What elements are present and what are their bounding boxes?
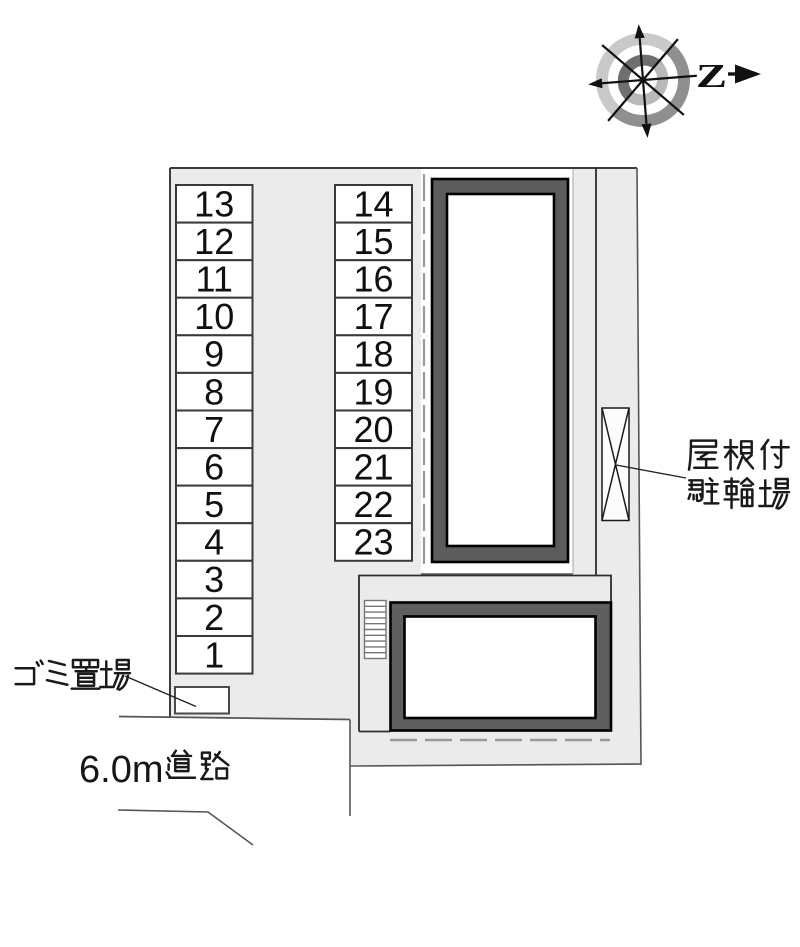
svg-text:10: 10 [194, 296, 234, 337]
svg-text:2: 2 [204, 597, 224, 638]
svg-text:4: 4 [204, 522, 224, 563]
svg-text:22: 22 [353, 484, 393, 525]
svg-text:17: 17 [353, 296, 393, 337]
svg-text:16: 16 [353, 259, 393, 300]
svg-text:6: 6 [204, 447, 224, 488]
svg-text:18: 18 [353, 334, 393, 375]
svg-text:1: 1 [204, 634, 224, 675]
svg-text:3: 3 [204, 559, 224, 600]
svg-text:20: 20 [353, 409, 393, 450]
svg-text:19: 19 [353, 371, 393, 412]
svg-text:12: 12 [194, 221, 234, 262]
svg-text:13: 13 [194, 183, 234, 224]
svg-text:8: 8 [204, 371, 224, 412]
svg-text:23: 23 [353, 522, 393, 563]
svg-text:14: 14 [353, 183, 393, 224]
svg-text:15: 15 [353, 221, 393, 262]
svg-text:9: 9 [204, 334, 224, 375]
svg-text:7: 7 [204, 409, 224, 450]
svg-text:11: 11 [196, 259, 233, 300]
svg-text:Z: Z [696, 58, 727, 95]
svg-text:6.0m: 6.0m [79, 749, 163, 791]
svg-text:5: 5 [204, 484, 224, 525]
svg-text:21: 21 [353, 447, 393, 488]
